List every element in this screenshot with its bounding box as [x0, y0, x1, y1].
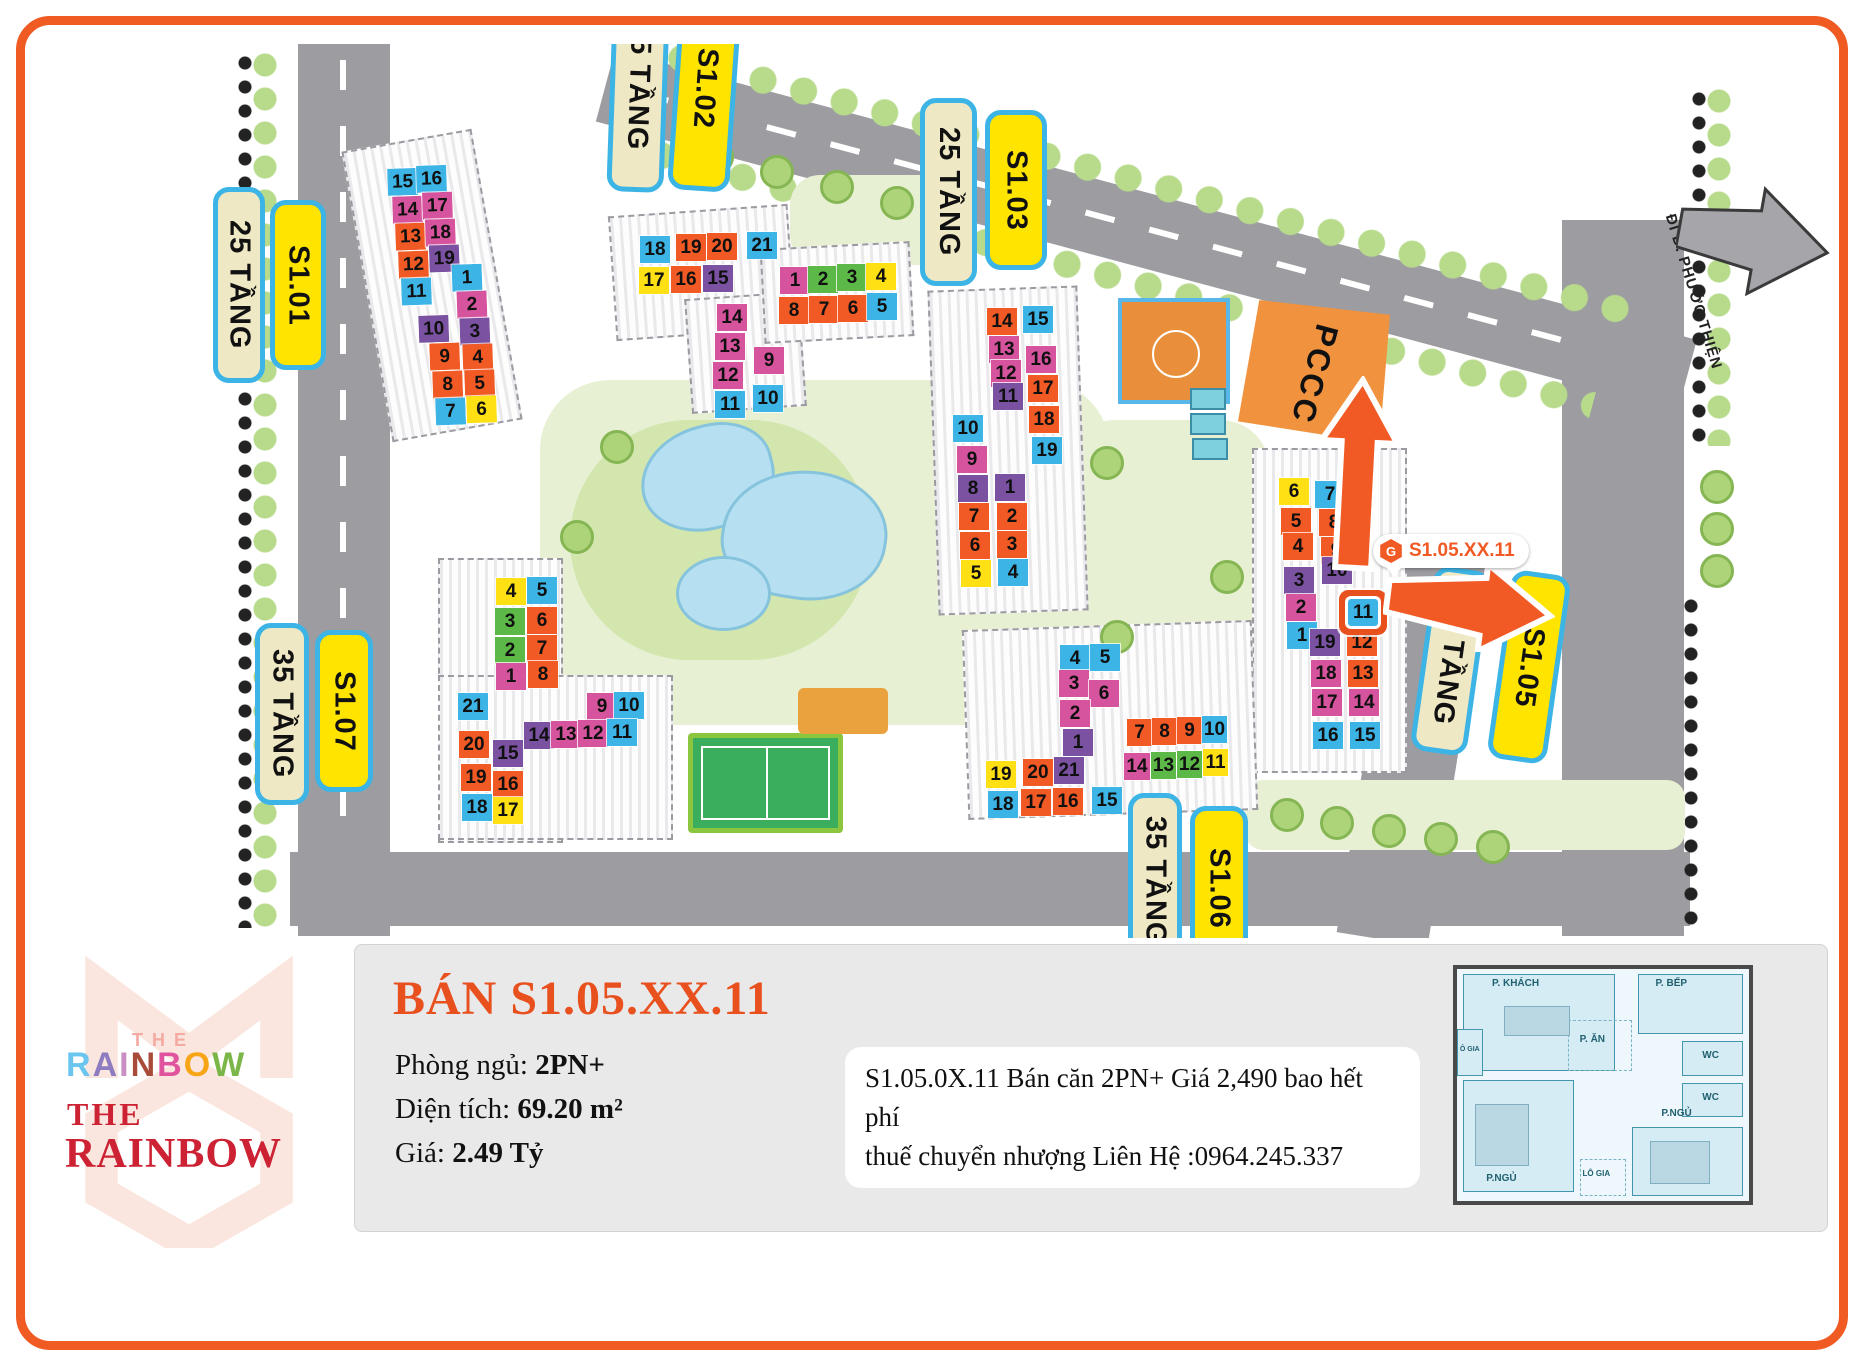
- logo-letter: N: [131, 1046, 158, 1084]
- unit-cell-s104-11[interactable]: 11: [993, 383, 1023, 410]
- room-label-wc1: WC: [1702, 1050, 1719, 1061]
- unit-cell-s106-16[interactable]: 16: [1053, 788, 1083, 815]
- tree-bead-string-right-bottom: [1682, 595, 1700, 925]
- unit-cell-s107-16[interactable]: 16: [493, 771, 523, 798]
- logo-the-big: THE: [67, 1096, 144, 1133]
- tree-icon: [1700, 512, 1734, 546]
- unit-cell-s102-18[interactable]: 18: [640, 236, 670, 263]
- unit-cell-s106-12[interactable]: 12: [1177, 751, 1202, 778]
- room-label-bed2: P.NGỦ: [1661, 1108, 1691, 1119]
- page: PCCC 15161417131812191112103948576181920…: [0, 0, 1864, 1366]
- unit-cell-s104-13[interactable]: 13: [989, 336, 1019, 363]
- unit-cell-s107-10[interactable]: 10: [614, 692, 644, 719]
- unit-cell-s101-13[interactable]: 13: [395, 223, 426, 251]
- unit-cell-s101-17[interactable]: 17: [422, 192, 453, 220]
- unit-cell-s106-10[interactable]: 10: [1202, 716, 1227, 743]
- unit-cell-s104-2[interactable]: 2: [997, 503, 1027, 530]
- unit-cell-s101-7[interactable]: 7: [435, 397, 466, 425]
- logo-letter: I: [119, 1046, 130, 1084]
- unit-cell-s103-7[interactable]: 7: [809, 296, 839, 323]
- room-label-loggia: LÔ GIA: [1583, 1169, 1611, 1178]
- room-kitchen: [1638, 974, 1743, 1034]
- map-label-35-t-ng[interactable]: 35 TẦNG: [1128, 793, 1182, 968]
- unit-cell-s101-2[interactable]: 2: [456, 291, 487, 319]
- unit-cell-s106-13[interactable]: 13: [1151, 752, 1176, 779]
- unit-cell-s107-5[interactable]: 5: [527, 577, 557, 604]
- bedrooms-row: Phòng ngủ: 2PN+: [395, 1049, 605, 1082]
- unit-cell-s101-3[interactable]: 3: [459, 317, 490, 345]
- logo-letter: B: [157, 1046, 184, 1084]
- unit-cell-s104-6[interactable]: 6: [960, 532, 990, 559]
- unit-cell-s106-8[interactable]: 8: [1152, 718, 1177, 745]
- price-label: Giá:: [395, 1137, 452, 1169]
- blue-structure-1: [1190, 388, 1226, 410]
- unit-cell-s106-17[interactable]: 17: [1021, 789, 1051, 816]
- unit-cell-s105-4[interactable]: 4: [1283, 533, 1313, 560]
- unit-cell-s105-19[interactable]: 19: [1310, 629, 1340, 656]
- unit-cell-s107-11[interactable]: 11: [607, 719, 637, 746]
- unit-cell-s107-2[interactable]: 2: [495, 637, 525, 664]
- unit-cell-s104-4[interactable]: 4: [998, 559, 1028, 586]
- unit-cell-s107-4[interactable]: 4: [496, 578, 526, 605]
- unit-cell-s106-14[interactable]: 14: [1124, 753, 1150, 780]
- unit-cell-s102-21[interactable]: 21: [747, 232, 777, 259]
- selected-unit-tag[interactable]: G S1.05.XX.11: [1373, 534, 1529, 568]
- unit-cell-s106-1[interactable]: 1: [1063, 729, 1093, 756]
- unit-cell-s106-7[interactable]: 7: [1127, 719, 1152, 746]
- unit-cell-s106-5[interactable]: 5: [1090, 644, 1120, 671]
- unit-cell-s107-12[interactable]: 12: [578, 720, 608, 747]
- unit-cell-s107-21[interactable]: 21: [458, 693, 488, 720]
- map-label-25-t-ng[interactable]: 25 TẦNG: [920, 98, 977, 286]
- unit-cell-s102-15[interactable]: 15: [703, 265, 733, 292]
- map-label-s1-03[interactable]: S1.03: [985, 110, 1047, 270]
- map-label-s1-07[interactable]: S1.07: [315, 630, 373, 792]
- unit-cell-s107-8[interactable]: 8: [528, 661, 558, 688]
- unit-cell-s101-9[interactable]: 9: [429, 343, 460, 371]
- tree-icon: [1700, 554, 1734, 588]
- unit-cell-s102-10[interactable]: 10: [753, 385, 783, 412]
- unit-cell-s101-12[interactable]: 12: [398, 251, 429, 279]
- hexagon-logo-icon: G: [1379, 539, 1403, 563]
- tree-icon: [1476, 830, 1510, 864]
- bed-icon-2: [1650, 1141, 1710, 1185]
- price-value: 2.49 Tỷ: [452, 1137, 543, 1169]
- unit-cell-s101-18[interactable]: 18: [425, 219, 456, 247]
- unit-cell-s107-3[interactable]: 3: [495, 608, 525, 635]
- unit-cell-s105-3[interactable]: 3: [1284, 567, 1314, 594]
- unit-cell-s106-4[interactable]: 4: [1060, 645, 1090, 672]
- unit-cell-s102-11[interactable]: 11: [715, 391, 745, 418]
- unit-cell-s106-20[interactable]: 20: [1023, 759, 1053, 786]
- unit-cell-s101-11[interactable]: 11: [401, 277, 432, 305]
- unit-cell-s101-15[interactable]: 15: [387, 168, 418, 196]
- the-rainbow-logo: THE RAINBOW THE RAINBOW: [58, 948, 328, 1258]
- room-label-wc2: WC: [1702, 1092, 1719, 1103]
- tree-icon: [1700, 470, 1734, 504]
- unit-cell-s104-9[interactable]: 9: [957, 446, 987, 473]
- logo-rainbow-big: RAINBOW: [65, 1130, 282, 1178]
- logo-letter: R: [66, 1046, 93, 1084]
- unit-cell-s106-2[interactable]: 2: [1060, 700, 1090, 727]
- unit-cell-s106-21[interactable]: 21: [1054, 757, 1084, 784]
- swimming-pool-3: [676, 556, 771, 631]
- listing-panel: BÁN S1.05.XX.11 Phòng ngủ: 2PN+ Diện tíc…: [354, 944, 1828, 1232]
- unit-cell-s104-19[interactable]: 19: [1032, 437, 1062, 464]
- unit-cell-s102-12[interactable]: 12: [713, 362, 743, 389]
- unit-cell-s104-3[interactable]: 3: [997, 531, 1027, 558]
- unit-cell-s106-3[interactable]: 3: [1059, 670, 1089, 697]
- listing-note: S1.05.0X.11 Bán căn 2PN+ Giá 2,490 bao h…: [845, 1047, 1420, 1188]
- blue-structure-3: [1192, 438, 1228, 460]
- sofa-icon: [1504, 1006, 1570, 1036]
- road-exit-arrow: [1676, 182, 1832, 302]
- map-label-35-t-ng[interactable]: 35 TẦNG: [255, 623, 309, 805]
- map-label-25-t-ng[interactable]: 25 TẦNG: [213, 187, 265, 383]
- unit-cell-s107-18[interactable]: 18: [462, 794, 492, 821]
- tree-icon: [1090, 446, 1124, 480]
- unit-cell-s105-14[interactable]: 14: [1349, 689, 1379, 716]
- unit-cell-s103-8[interactable]: 8: [779, 297, 809, 324]
- map-label-25-t-ng[interactable]: 25 TẦNG: [606, 0, 670, 193]
- orange-court: [798, 688, 888, 734]
- logo-letter: A: [93, 1046, 120, 1084]
- unit-cell-s101-5[interactable]: 5: [464, 369, 495, 397]
- unit-cell-s106-9[interactable]: 9: [1177, 717, 1202, 744]
- unit-cell-s107-15[interactable]: 15: [493, 740, 523, 767]
- note-line1: S1.05.0X.11 Bán căn 2PN+ Giá 2,490 bao h…: [865, 1063, 1363, 1132]
- unit-cell-s101-1[interactable]: 1: [452, 264, 483, 292]
- unit-cell-s107-6[interactable]: 6: [527, 607, 557, 634]
- logo-rainbow-colored: RAINBOW: [66, 1046, 246, 1085]
- note-line2: thuế chuyển nhượng Liên Hệ :0964.245.337: [865, 1141, 1343, 1171]
- tree-icon: [600, 430, 634, 464]
- unit-cell-s101-8[interactable]: 8: [432, 370, 463, 398]
- unit-cell-s105-12[interactable]: 12: [1347, 629, 1377, 656]
- unit-cell-s105-5[interactable]: 5: [1281, 508, 1311, 535]
- unit-cell-s102-13[interactable]: 13: [715, 333, 745, 360]
- tree-icon: [1270, 798, 1304, 832]
- tree-icon: [1372, 814, 1406, 848]
- unit-cell-s101-4[interactable]: 4: [462, 343, 493, 371]
- unit-cell-s104-17[interactable]: 17: [1028, 375, 1058, 402]
- unit-cell-s101-10[interactable]: 10: [418, 315, 449, 343]
- bedrooms-value: 2PN+: [535, 1049, 605, 1081]
- unit-cell-s101-14[interactable]: 14: [392, 196, 423, 224]
- price-row: Giá: 2.49 Tỷ: [395, 1137, 544, 1170]
- unit-cell-s106-19[interactable]: 19: [986, 761, 1016, 788]
- logo-letter: W: [212, 1046, 246, 1084]
- unit-cell-s105-6[interactable]: 6: [1279, 478, 1309, 505]
- listing-title: BÁN S1.05.XX.11: [393, 971, 771, 1026]
- tree-icon: [1210, 560, 1244, 594]
- area-row: Diện tích: 69.20 m²: [395, 1093, 623, 1126]
- unit-cell-s102-20[interactable]: 20: [707, 233, 737, 260]
- unit-cell-s106-15[interactable]: 15: [1092, 787, 1122, 814]
- unit-cell-s102-19[interactable]: 19: [676, 234, 706, 261]
- unit-cell-s102-14[interactable]: 14: [717, 304, 747, 331]
- unit-cell-s103-1[interactable]: 1: [780, 267, 810, 294]
- unit-cell-s104-16[interactable]: 16: [1026, 346, 1056, 373]
- unit-cell-s104-10[interactable]: 10: [953, 415, 983, 442]
- room-label-kitchen: P. BẾP: [1656, 978, 1688, 989]
- unit-cell-s104-8[interactable]: 8: [958, 475, 988, 502]
- right-arrow: [1383, 560, 1555, 652]
- unit-cell-s107-13[interactable]: 13: [551, 721, 581, 748]
- unit-cell-s103-6[interactable]: 6: [838, 295, 868, 322]
- unit-cell-s107-17[interactable]: 17: [493, 797, 523, 824]
- tree-icon: [760, 155, 794, 189]
- unit-cell-s102-16[interactable]: 16: [671, 266, 701, 293]
- logo-letter: O: [184, 1046, 212, 1084]
- room-dining: [1568, 1020, 1632, 1071]
- unit-cell-s101-16[interactable]: 16: [416, 165, 447, 193]
- green-bottom-right: [1245, 780, 1685, 850]
- unit-cell-s104-14[interactable]: 14: [987, 308, 1017, 335]
- tennis-court: [688, 733, 843, 833]
- map-label-s1-01[interactable]: S1.01: [270, 200, 326, 370]
- room-label-loggia-left: Ô GIA: [1460, 1046, 1480, 1053]
- tree-icon: [820, 170, 854, 204]
- unit-cell-s102-17[interactable]: 17: [639, 267, 669, 294]
- unit-cell-s107-7[interactable]: 7: [527, 635, 557, 662]
- unit-cell-s105-13[interactable]: 13: [1348, 660, 1378, 687]
- unit-cell-s103-5[interactable]: 5: [867, 293, 897, 320]
- selected-unit-code: S1.05.XX.11: [1409, 540, 1515, 562]
- area-value: 69.20 m²: [517, 1093, 622, 1125]
- unit-cell-s107-20[interactable]: 20: [459, 731, 489, 758]
- unit-cell-s103-4[interactable]: 4: [866, 263, 896, 290]
- area-label: Diện tích:: [395, 1093, 517, 1125]
- room-loggia: [1580, 1159, 1627, 1196]
- unit-cell-s102-9[interactable]: 9: [754, 347, 784, 374]
- unit-cell-s106-18[interactable]: 18: [988, 791, 1018, 818]
- unit-cell-s104-1[interactable]: 1: [995, 474, 1025, 501]
- unit-cell-s104-18[interactable]: 18: [1029, 406, 1059, 433]
- unit-cell-s107-19[interactable]: 19: [461, 764, 491, 791]
- unit-cell-s103-3[interactable]: 3: [837, 264, 867, 291]
- unit-cell-s101-6[interactable]: 6: [466, 395, 497, 423]
- room-label-living: P. KHÁCH: [1492, 978, 1539, 989]
- unit-cell-s105-17[interactable]: 17: [1312, 689, 1342, 716]
- unit-cell-s105-11[interactable]: 11: [1348, 599, 1378, 626]
- unit-cell-s106-11[interactable]: 11: [1203, 749, 1228, 776]
- bed-icon-1: [1475, 1104, 1530, 1166]
- tree-icon: [1424, 822, 1458, 856]
- blue-structure-2: [1190, 413, 1226, 435]
- unit-cell-s105-18[interactable]: 18: [1311, 660, 1341, 687]
- unit-cell-s106-6[interactable]: 6: [1089, 680, 1119, 707]
- unit-cell-s105-15[interactable]: 15: [1350, 722, 1380, 749]
- unit-cell-s104-5[interactable]: 5: [961, 560, 991, 587]
- tree-icon: [560, 520, 594, 554]
- unit-cell-s107-9[interactable]: 9: [587, 693, 617, 720]
- unit-cell-s105-2[interactable]: 2: [1286, 594, 1316, 621]
- floorplan-thumbnail: P. KHÁCH P. BẾP P. ĂN Ô GIA WC WC P.NGỦ …: [1453, 965, 1753, 1205]
- unit-cell-s107-1[interactable]: 1: [496, 663, 526, 690]
- unit-cell-s107-14[interactable]: 14: [524, 722, 554, 749]
- unit-cell-s105-16[interactable]: 16: [1313, 722, 1343, 749]
- unit-cell-s103-2[interactable]: 2: [808, 266, 838, 293]
- unit-cell-s104-7[interactable]: 7: [959, 503, 989, 530]
- tree-bead-string-left: [236, 52, 254, 928]
- bedrooms-label: Phòng ngủ:: [395, 1049, 535, 1081]
- tree-icon: [1320, 806, 1354, 840]
- room-label-bed1: P.NGỦ: [1486, 1173, 1516, 1184]
- tree-icon: [880, 186, 914, 220]
- room-label-dining: P. ĂN: [1580, 1034, 1605, 1045]
- road-bottom: [290, 852, 1690, 926]
- unit-cell-s104-15[interactable]: 15: [1023, 306, 1053, 333]
